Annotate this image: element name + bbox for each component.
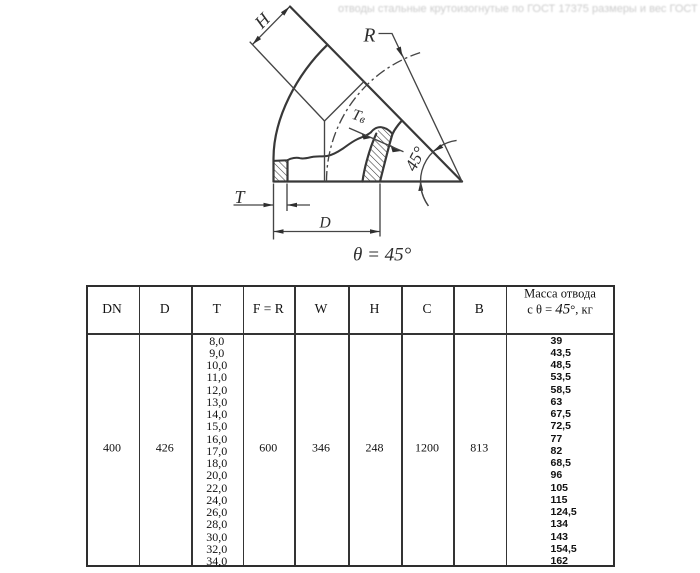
svg-text:R: R xyxy=(363,26,376,47)
svg-text:Tв: Tв xyxy=(350,106,368,126)
svg-text:T: T xyxy=(235,187,247,207)
svg-text:θ = 45°: θ = 45° xyxy=(353,245,412,266)
svg-text:D: D xyxy=(319,215,331,232)
svg-text:45°: 45° xyxy=(401,143,430,174)
svg-text:H: H xyxy=(250,8,275,33)
